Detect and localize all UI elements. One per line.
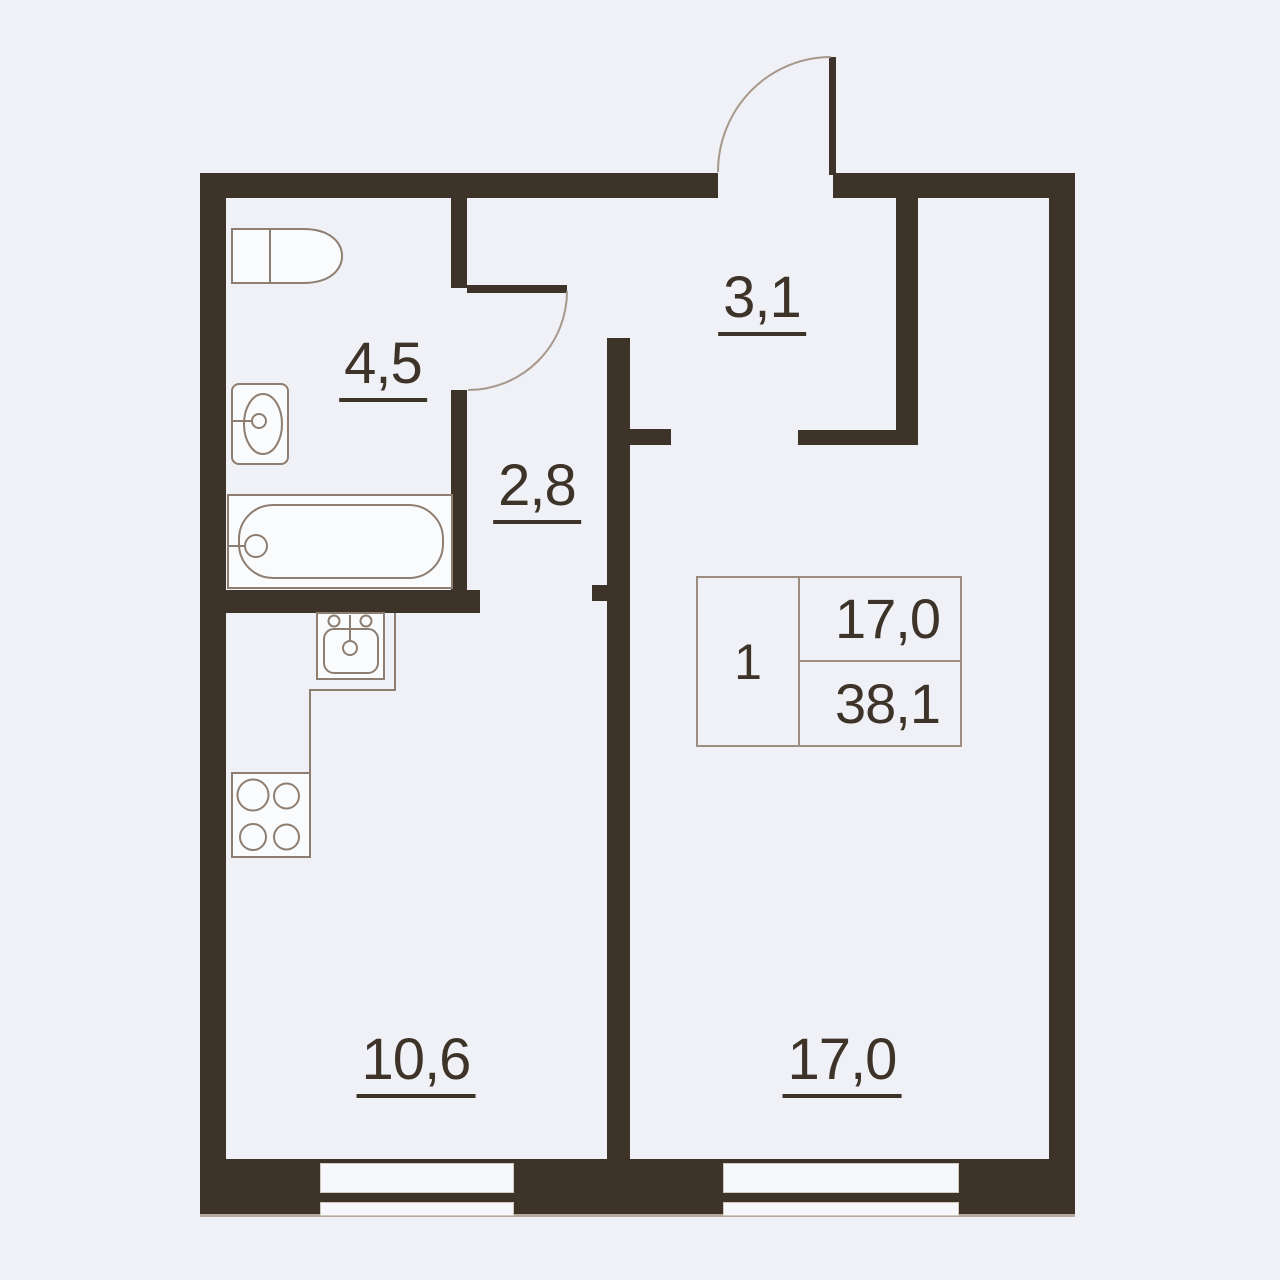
kitchen-sink-icon bbox=[317, 613, 384, 679]
toilet-icon bbox=[232, 229, 342, 283]
room-label-bathroom: 4,5 bbox=[339, 335, 427, 402]
room-label-living-room: 17,0 bbox=[783, 1031, 902, 1098]
room-label-text: 17,0 bbox=[783, 1031, 902, 1098]
entrance-door-arc bbox=[718, 57, 831, 172]
total-area: 38,1 bbox=[800, 662, 960, 746]
room-label-text: 3,1 bbox=[718, 269, 806, 336]
room-label-text: 4,5 bbox=[339, 335, 427, 402]
room-label-kitchen: 10,6 bbox=[357, 1031, 476, 1098]
rooms-count: 1 bbox=[698, 578, 800, 745]
bathroom-sink-icon bbox=[232, 384, 288, 464]
room-label-text: 2,8 bbox=[493, 457, 581, 524]
stove-icon bbox=[232, 773, 310, 857]
fixtures-layer bbox=[0, 0, 1280, 1280]
room-label-corridor: 2,8 bbox=[493, 457, 581, 524]
room-label-hallway: 3,1 bbox=[718, 269, 806, 336]
floor-plan: 4,5 3,1 2,8 10,6 17,0 1 17,0 38,1 bbox=[0, 0, 1280, 1280]
living-area: 17,0 bbox=[800, 578, 960, 662]
bathtub-icon bbox=[228, 495, 452, 588]
room-label-text: 10,6 bbox=[357, 1031, 476, 1098]
bathroom-door-arc bbox=[468, 291, 567, 390]
apartment-info-table: 1 17,0 38,1 bbox=[696, 576, 962, 747]
